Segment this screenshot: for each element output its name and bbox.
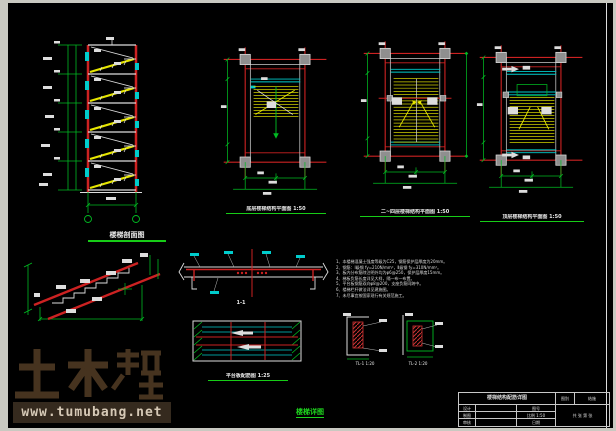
- cad-canvas: 楼梯剖面图 底层楼梯结构平面图 1:50: [8, 3, 613, 428]
- plan-bottom-drawing: [220, 45, 332, 213]
- watermark-url: www.tumubang.net: [13, 402, 171, 423]
- section-title: 楼梯剖面图: [88, 231, 166, 242]
- plan-top-drawing: [476, 43, 588, 211]
- beam-section-drawing: [176, 247, 331, 309]
- flight-detail-drawing: [22, 245, 177, 325]
- plan-middle-drawing: [360, 39, 472, 207]
- notes-block: 1、本楼梯混凝土强度等级为C25，钢筋保护层厚度为20mm。 2、钢筋：Ⅰ级钢 …: [336, 259, 470, 298]
- title-block-row-extra: 日期: [516, 418, 556, 427]
- cad-screenshot: 楼梯剖面图 底层楼梯结构平面图 1:50: [0, 0, 616, 431]
- note-line: 7、未尽事宜按国家现行有关规范施工。: [336, 293, 470, 299]
- detail-left-drawing: [341, 313, 389, 361]
- title-block-row-label: 审核: [458, 418, 476, 427]
- title-block-row-value: [475, 418, 517, 427]
- plan-bottom-title: 底层楼梯结构平面图 1:50: [226, 206, 326, 214]
- plan-middle-title: 二~四层楼梯结构平面图 1:50: [360, 209, 470, 217]
- beam-section-label: 1-1: [232, 300, 250, 306]
- drawing-frame-right-line: [606, 3, 607, 428]
- landing-plan-title: 平台板配筋图 1:25: [208, 373, 288, 381]
- title-block-sheet-note: 共 张 第 张: [555, 404, 610, 427]
- green-stamp-label: 楼梯详图: [296, 407, 324, 418]
- detail-left-label: TL-1 1:20: [341, 361, 389, 366]
- detail-right-drawing: [393, 313, 443, 361]
- watermark: 土木帮 www.tumubang.net: [13, 345, 173, 427]
- tumubang-logo: [13, 345, 165, 401]
- detail-right-label: TL-2 1:20: [393, 361, 443, 366]
- stair-section-drawing: [30, 35, 160, 240]
- title-block: 楼梯结构配筋详图 图别 结施 设计 图号 制图 比例 1:50 审核 日期 共 …: [458, 392, 610, 427]
- landing-plan-drawing: [191, 319, 306, 369]
- plan-top-title: 顶层楼梯结构平面图 1:50: [480, 214, 584, 222]
